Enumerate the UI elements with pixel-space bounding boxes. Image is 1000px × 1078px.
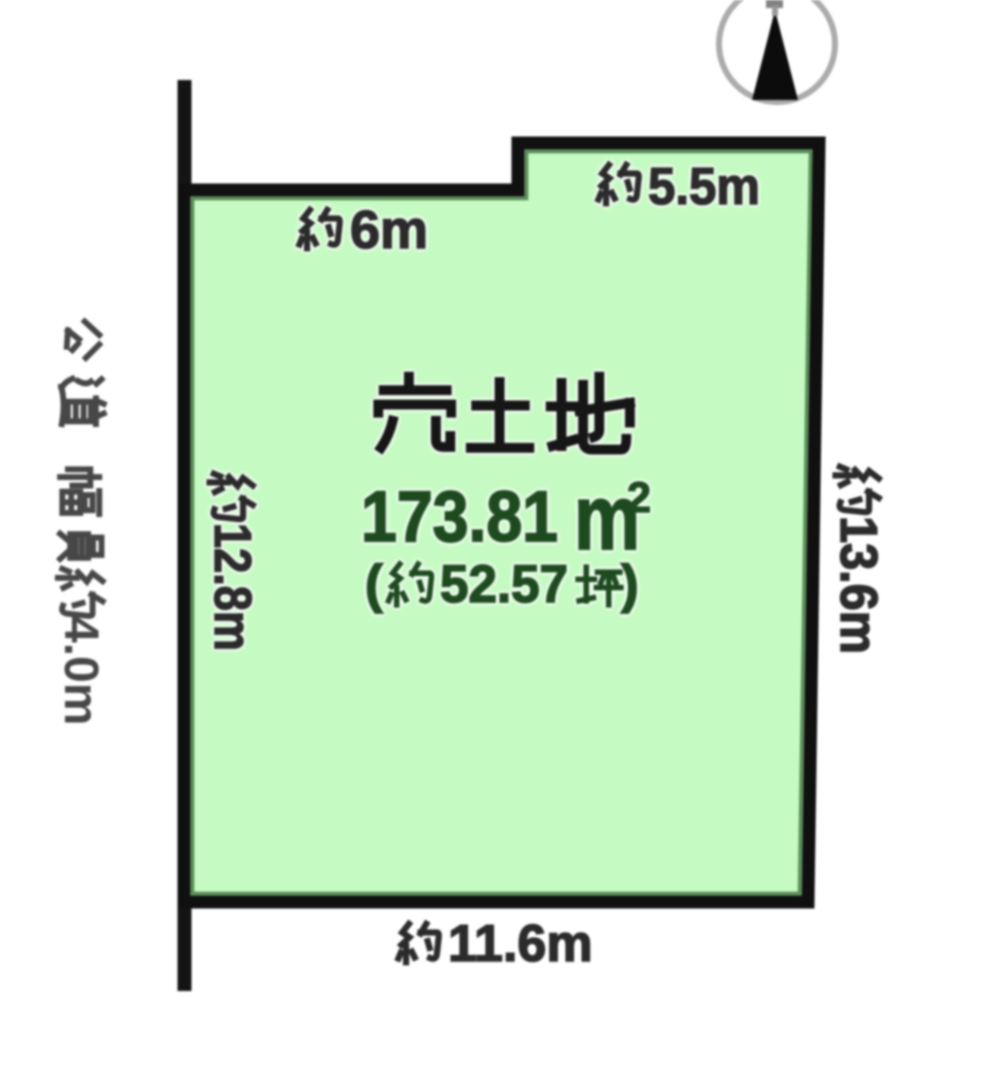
svg-text:13.6m: 13.6m [829, 516, 887, 654]
svg-text:12.8m: 12.8m [203, 523, 261, 651]
svg-text:(: ( [365, 555, 383, 614]
svg-text:173.81: 173.81 [361, 478, 558, 557]
svg-text:11.6m: 11.6m [448, 915, 593, 973]
svg-text:4.0m: 4.0m [54, 616, 107, 725]
svg-text:2: 2 [627, 474, 651, 522]
svg-text:6m: 6m [350, 200, 428, 260]
svg-text:): ) [621, 555, 639, 614]
svg-text:52.57: 52.57 [440, 555, 568, 614]
svg-text:5.5m: 5.5m [648, 158, 760, 216]
